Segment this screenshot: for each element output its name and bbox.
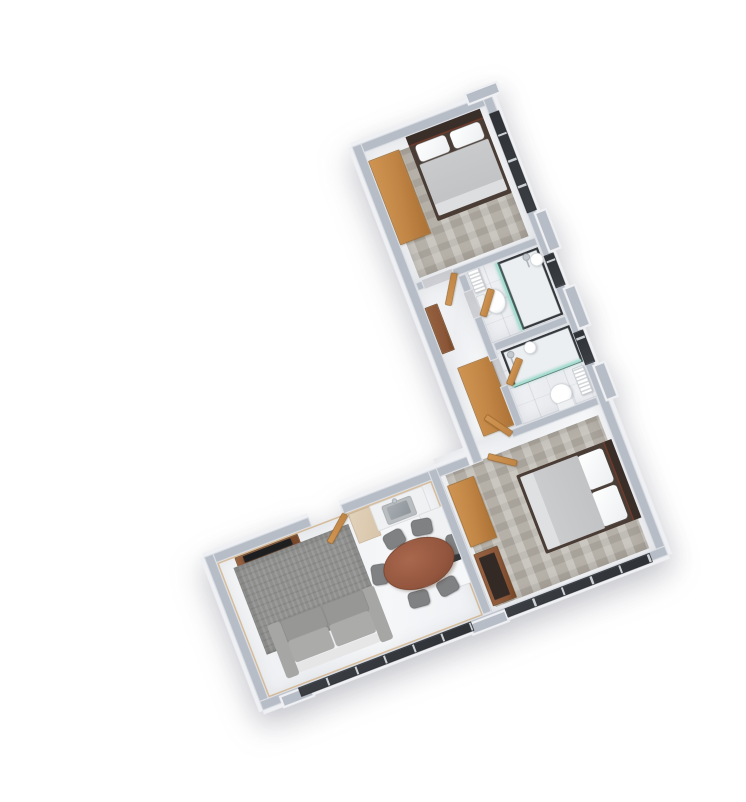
- apartment-plan: [85, 93, 668, 711]
- sink-basin: [386, 500, 411, 520]
- floor-plan-image: [0, 0, 746, 802]
